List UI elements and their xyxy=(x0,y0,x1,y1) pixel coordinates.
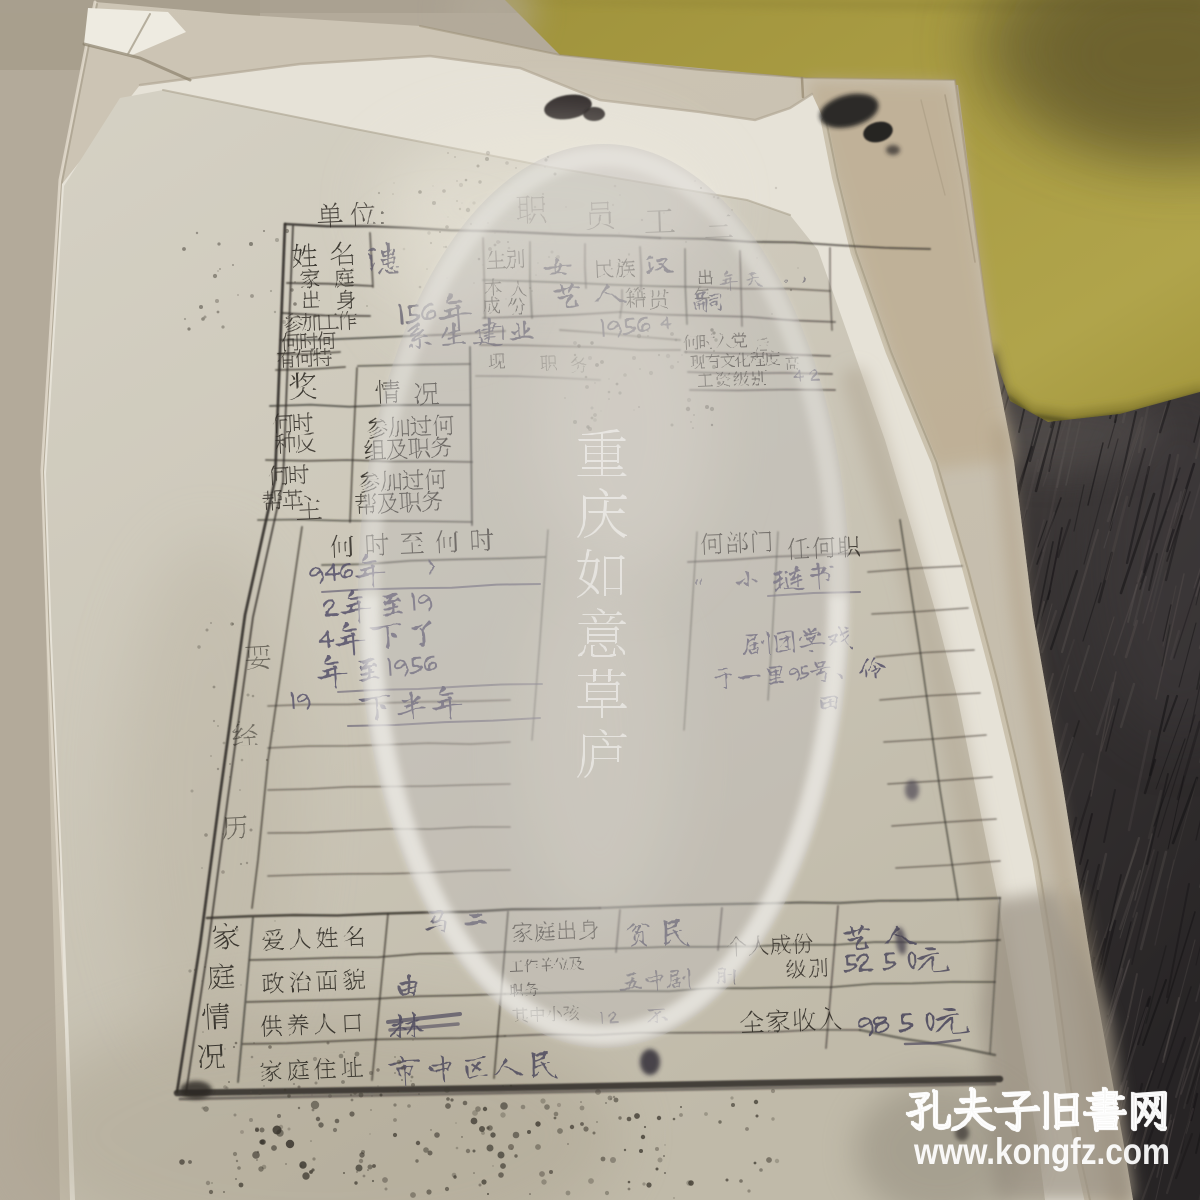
svg-text:www.kongfz.com: www.kongfz.com xyxy=(913,1131,1170,1172)
